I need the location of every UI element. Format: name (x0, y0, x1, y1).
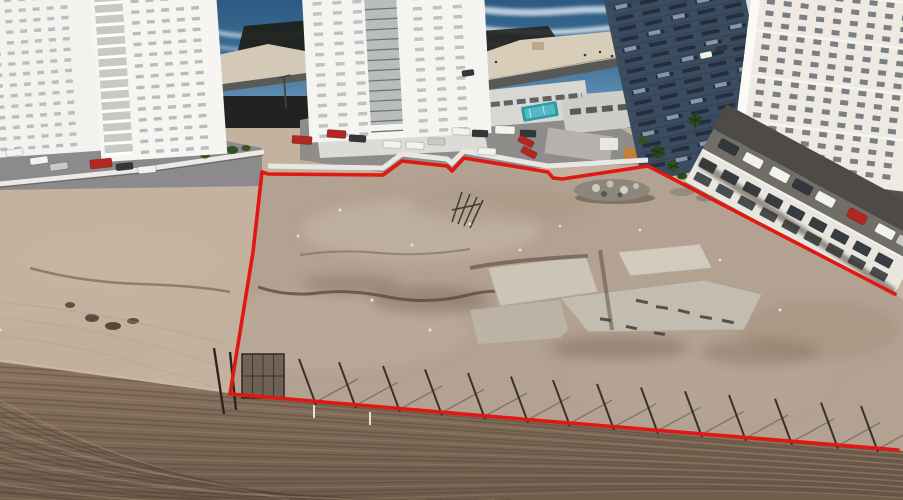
parked-car (406, 142, 424, 150)
beach-kiosk (532, 42, 544, 50)
parked-car (478, 148, 496, 156)
parked-car (462, 69, 475, 77)
parked-car (495, 126, 515, 135)
parked-car (327, 129, 347, 138)
parked-car (452, 128, 470, 136)
parked-car (138, 165, 157, 174)
parked-car (383, 141, 401, 149)
parked-car (472, 130, 488, 138)
aerial-photo (0, 0, 903, 500)
parked-car (349, 134, 366, 142)
left-tower-b (90, 0, 228, 162)
chain-link-panel (242, 354, 284, 398)
parked-car (116, 162, 134, 171)
aerial-photo-stage (0, 0, 903, 500)
parked-car (292, 135, 313, 144)
left-tower-a (0, 0, 105, 158)
parked-car (90, 158, 113, 169)
parked-car (428, 138, 445, 146)
